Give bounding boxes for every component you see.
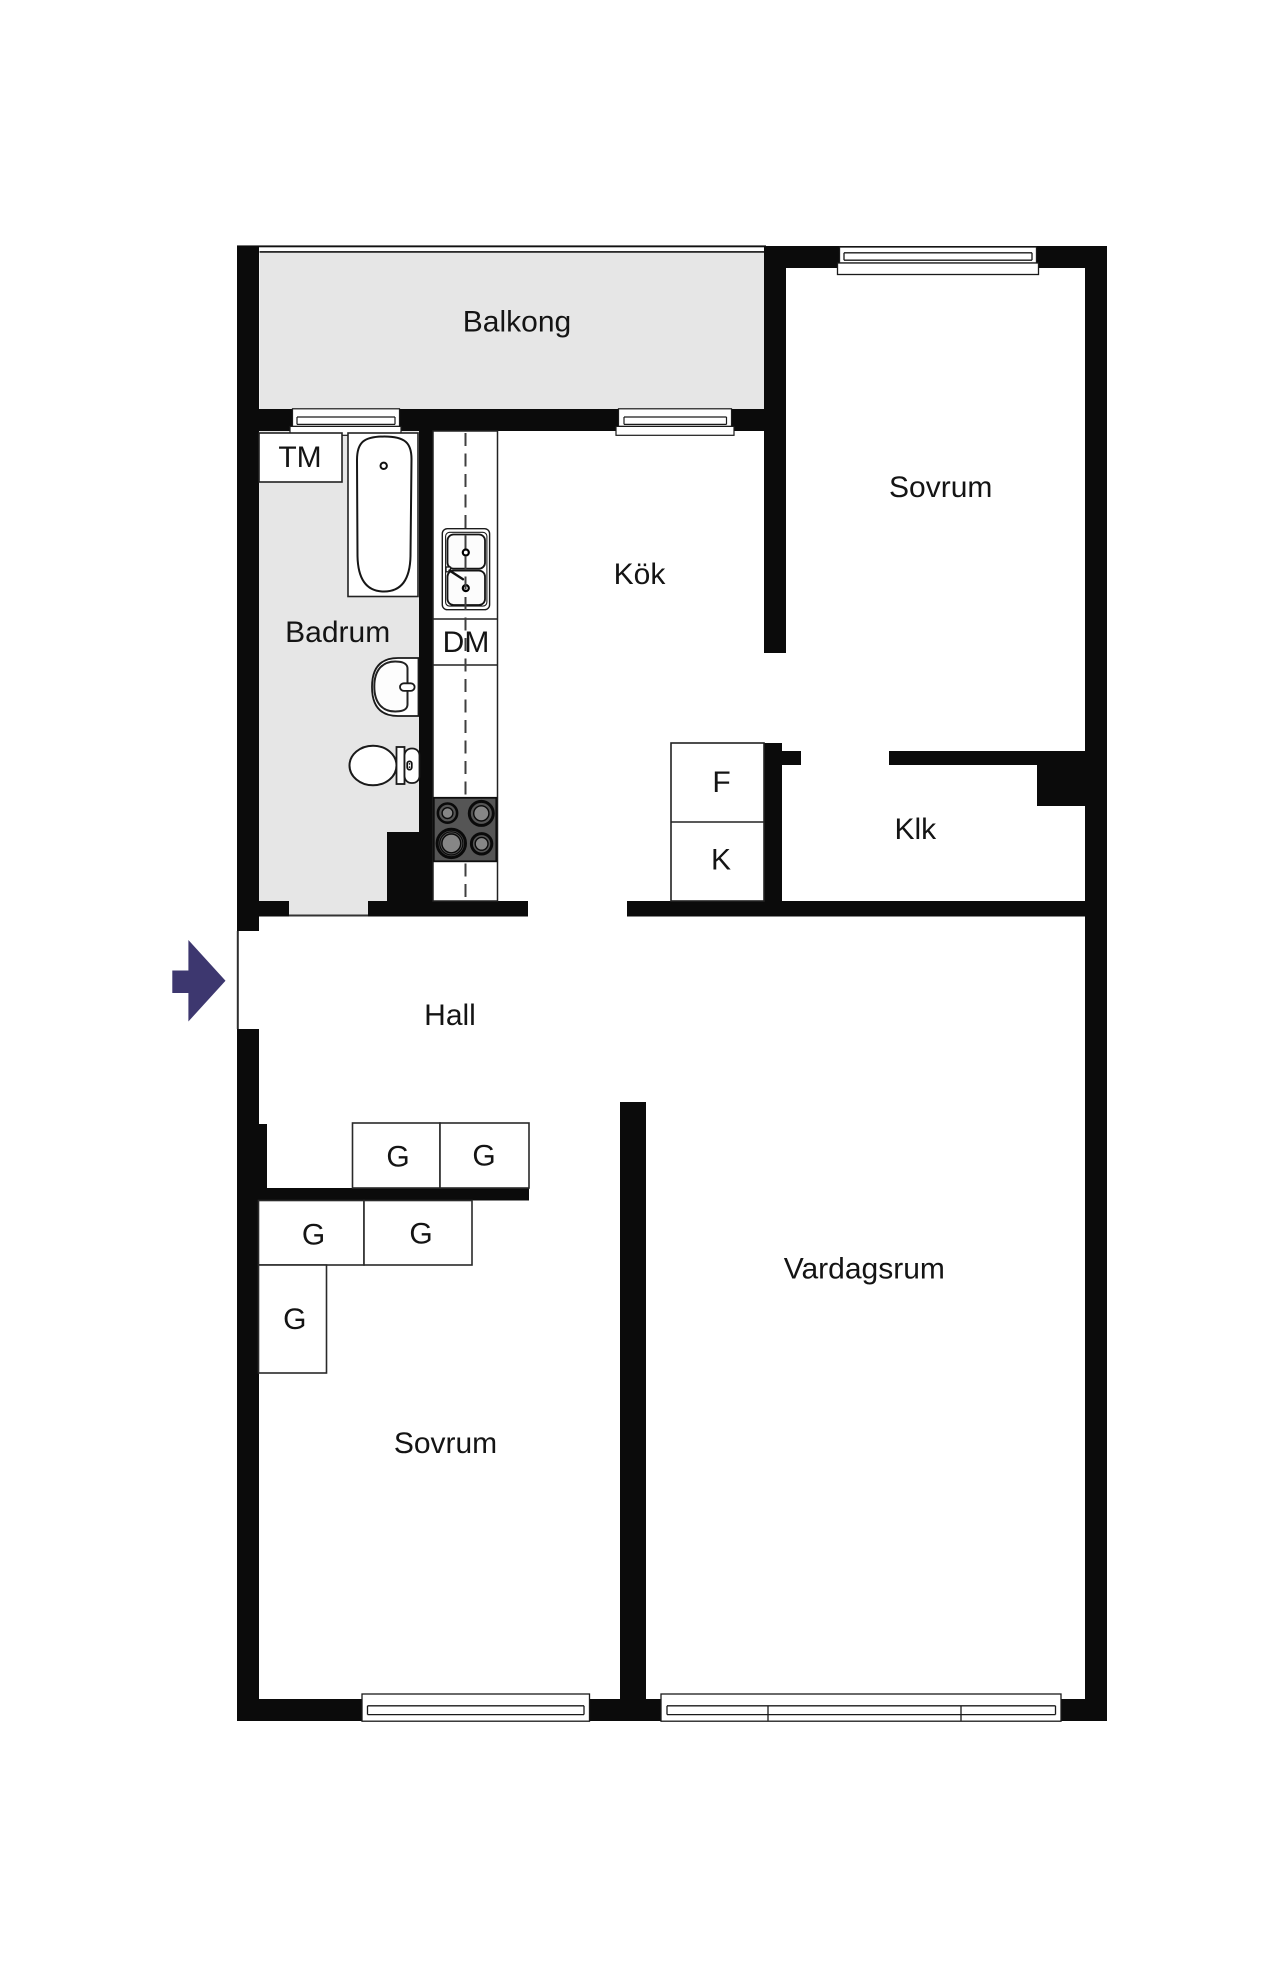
svg-text:Sovrum: Sovrum [394, 1427, 497, 1460]
svg-text:Hall: Hall [424, 999, 476, 1032]
svg-text:K: K [711, 844, 731, 877]
svg-text:Vardagsrum: Vardagsrum [784, 1253, 945, 1286]
svg-text:Sovrum: Sovrum [889, 471, 992, 504]
svg-text:G: G [409, 1218, 432, 1251]
svg-text:G: G [386, 1141, 409, 1174]
svg-text:G: G [472, 1140, 495, 1173]
svg-text:Badrum: Badrum [285, 616, 390, 649]
svg-text:DM: DM [443, 626, 490, 659]
svg-text:G: G [283, 1303, 306, 1336]
svg-text:Balkong: Balkong [463, 306, 571, 339]
svg-text:Klk: Klk [894, 813, 937, 846]
svg-text:G: G [302, 1219, 325, 1252]
svg-text:Kök: Kök [614, 558, 667, 591]
svg-text:F: F [712, 766, 730, 799]
svg-text:TM: TM [278, 441, 321, 474]
